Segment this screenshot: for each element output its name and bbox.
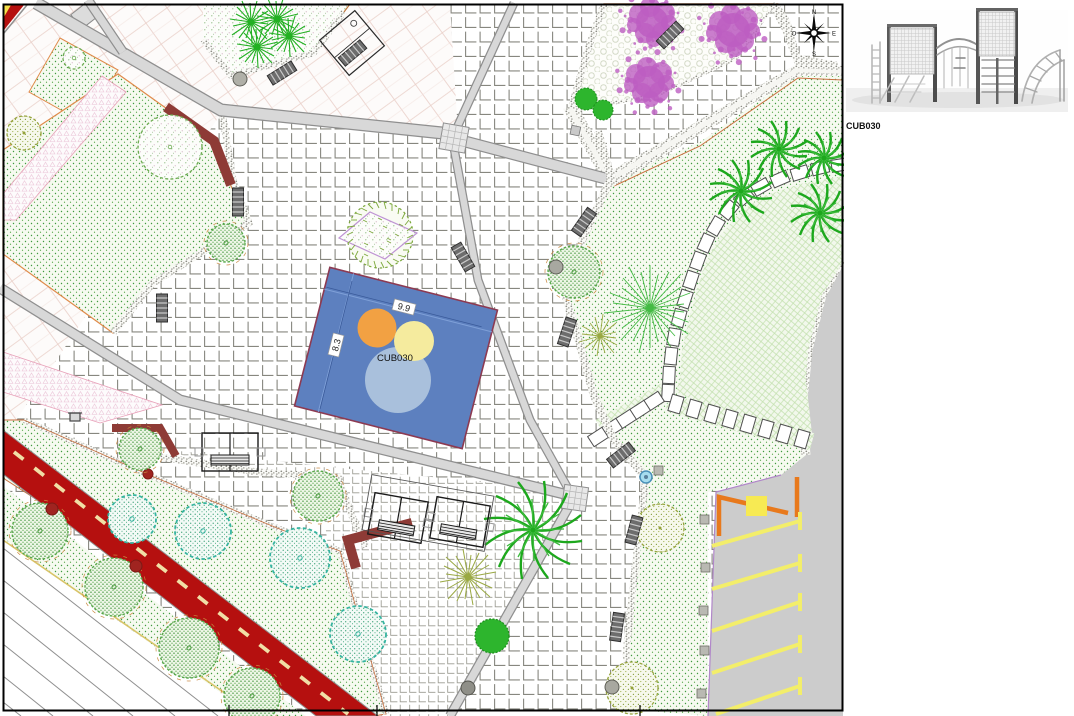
svg-text:E: E: [832, 31, 836, 37]
svg-text:CUB030: CUB030: [846, 121, 881, 131]
svg-text:O: O: [792, 31, 797, 37]
svg-text:CUB030: CUB030: [377, 353, 413, 364]
svg-text:S: S: [812, 52, 816, 58]
svg-text:N: N: [812, 10, 816, 16]
